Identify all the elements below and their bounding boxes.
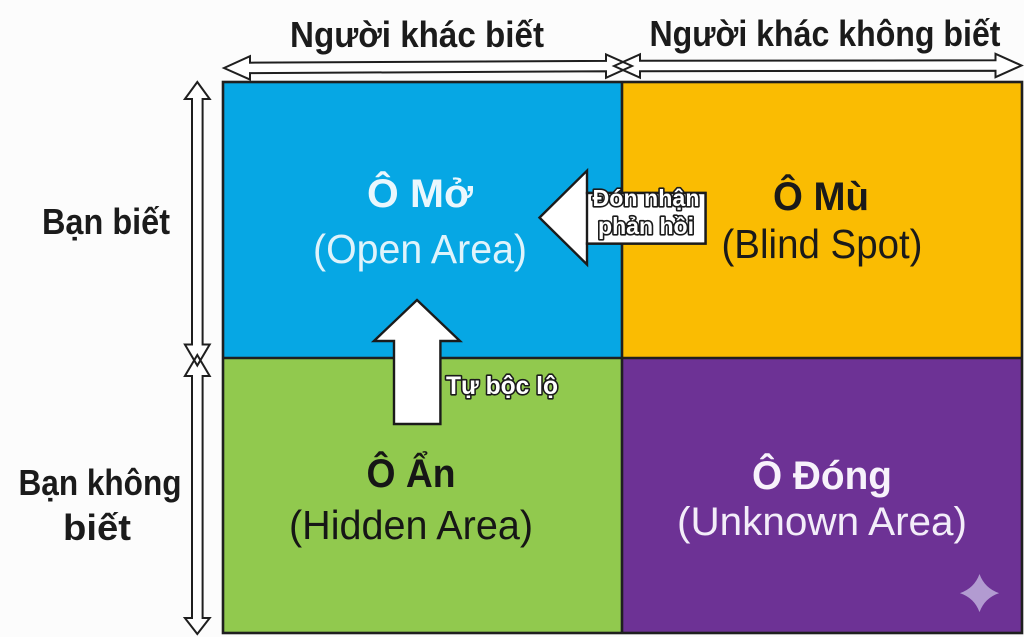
svg-text:Đón nhận: Đón nhận [593,185,700,211]
svg-text:phản hồi: phản hồi [598,213,694,239]
svg-text:biết: biết [63,507,131,548]
svg-text:Bạn không: Bạn không [19,462,182,503]
svg-text:Ô Đóng: Ô Đóng [752,452,892,498]
svg-text:Bạn biết: Bạn biết [42,201,170,242]
svg-text:Ô Mở: Ô Mở [367,170,474,216]
svg-text:Người khác không biết: Người khác không biết [650,13,1001,54]
svg-text:Ô Ẩn: Ô Ẩn [367,449,456,496]
svg-text:Tự bộc lộ: Tự bộc lộ [446,372,558,400]
svg-text:(Hidden Area): (Hidden Area) [289,502,533,548]
svg-text:Người khác biết: Người khác biết [290,14,544,55]
svg-text:(Open Area): (Open Area) [313,226,527,272]
svg-text:Ô Mù: Ô Mù [773,173,869,219]
svg-text:(Unknown Area): (Unknown Area) [677,500,967,544]
svg-text:(Blind Spot): (Blind Spot) [722,221,923,267]
